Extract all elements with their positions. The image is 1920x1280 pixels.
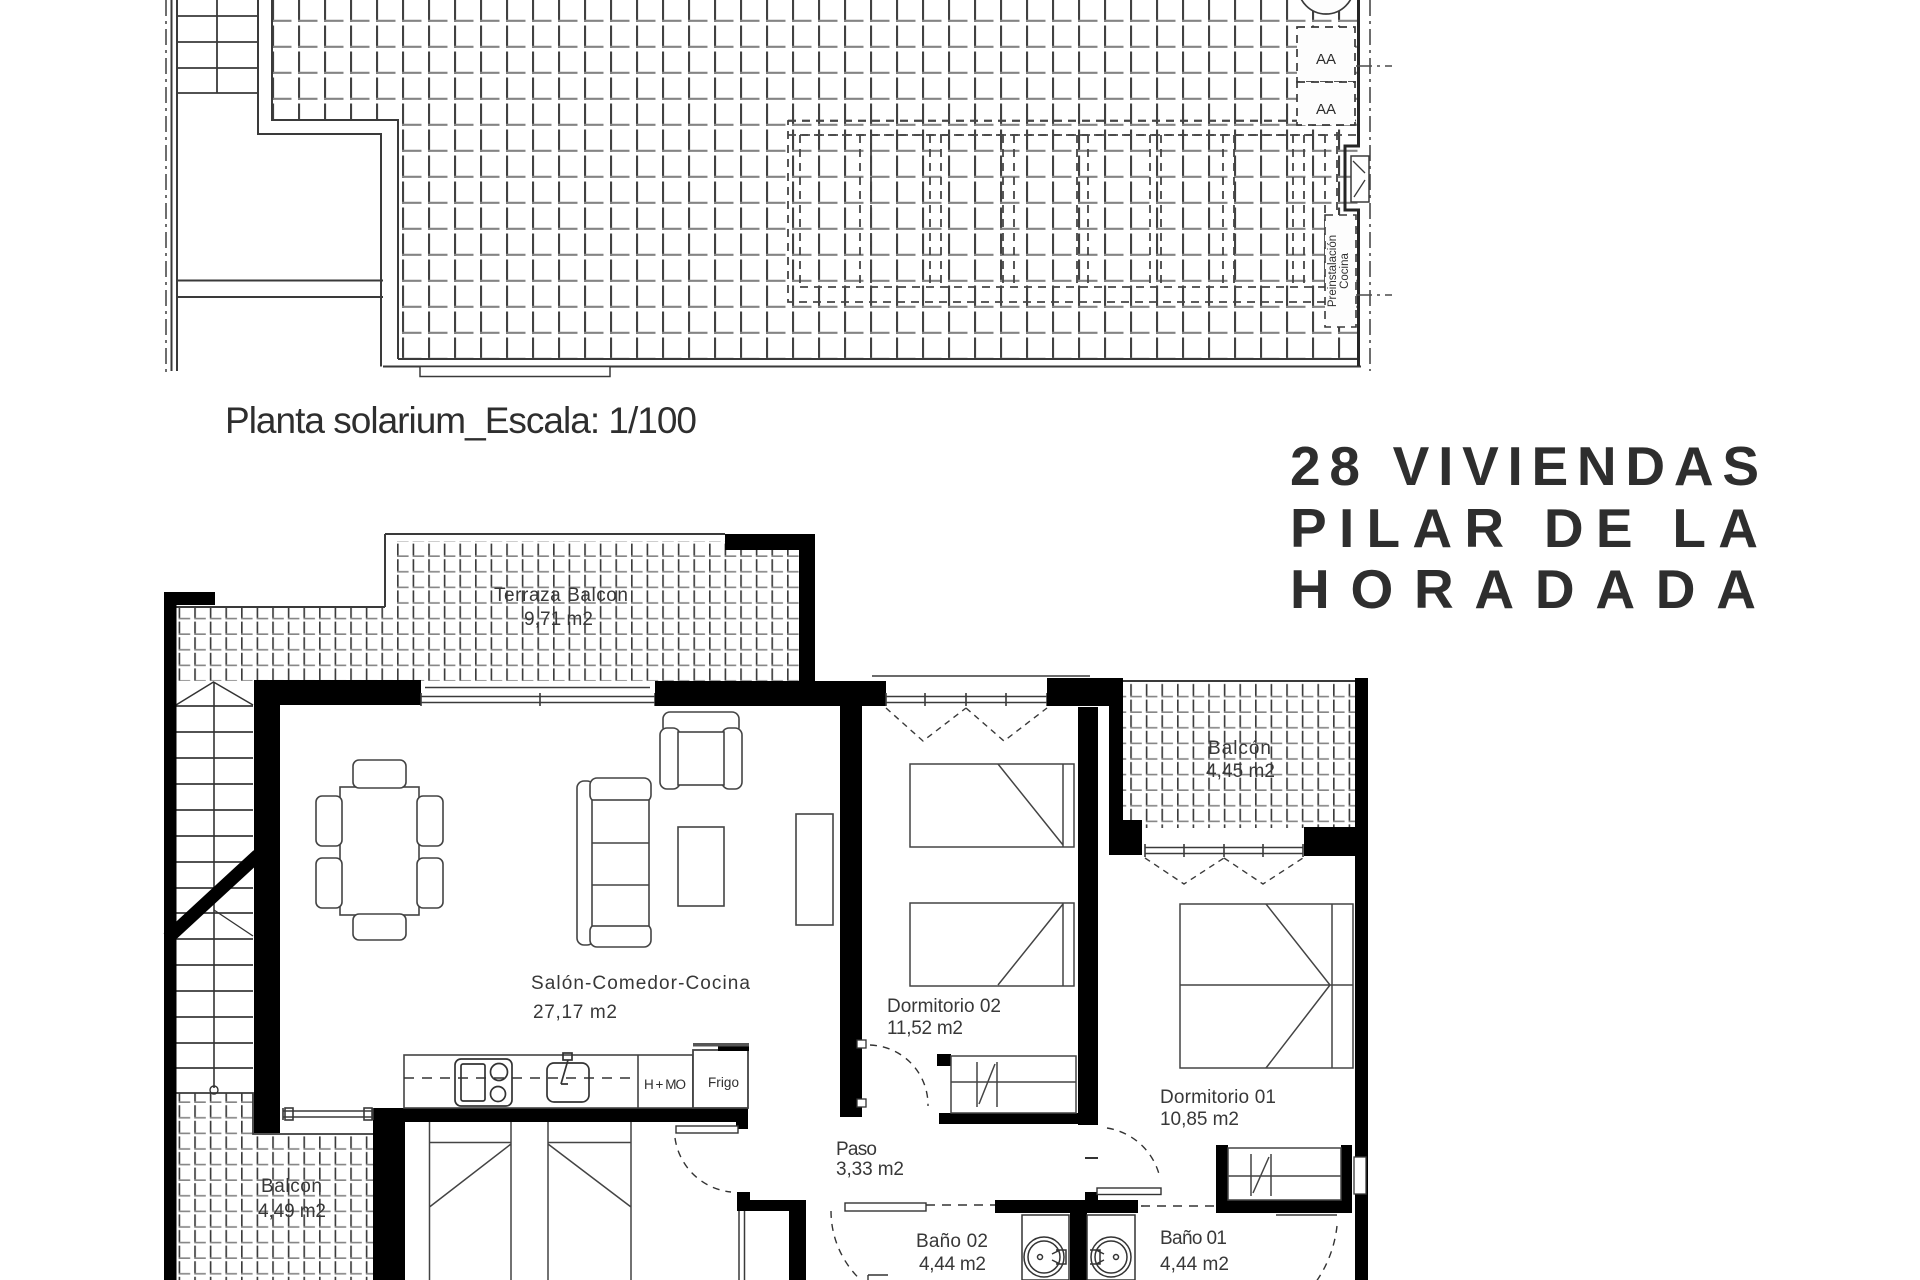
svg-text:Paso: Paso xyxy=(836,1139,877,1160)
svg-text:Preinstalación: Preinstalación xyxy=(1327,235,1339,307)
svg-text:4,49 m2: 4,49 m2 xyxy=(258,1201,326,1222)
svg-text:Salón-Comedor-Cocina: Salón-Comedor-Cocina xyxy=(531,973,750,994)
svg-text:Baño 01: Baño 01 xyxy=(1160,1228,1227,1249)
svg-text:Planta solarium_Escala: 1/100: Planta solarium_Escala: 1/100 xyxy=(225,400,697,441)
svg-text:Balcon: Balcon xyxy=(261,1176,322,1197)
svg-text:Dormitorio 01: Dormitorio 01 xyxy=(1160,1087,1276,1108)
svg-text:3,33 m2: 3,33 m2 xyxy=(836,1159,904,1180)
svg-text:4,44 m2: 4,44 m2 xyxy=(1160,1254,1229,1275)
svg-text:27,17 m2: 27,17 m2 xyxy=(533,1002,617,1023)
svg-text:Terraza Balcon: Terraza Balcon xyxy=(494,585,628,606)
svg-text:Frigo: Frigo xyxy=(708,1075,739,1090)
svg-text:H + MO: H + MO xyxy=(644,1077,686,1092)
svg-text:Baño 02: Baño 02 xyxy=(916,1231,988,1252)
svg-text:9,71 m2: 9,71 m2 xyxy=(524,609,593,630)
svg-text:AA: AA xyxy=(1316,101,1336,118)
svg-text:4,45 m2: 4,45 m2 xyxy=(1206,761,1275,782)
svg-text:AA: AA xyxy=(1316,51,1336,68)
svg-text:Cocina: Cocina xyxy=(1339,253,1351,289)
svg-text:4,44 m2: 4,44 m2 xyxy=(919,1254,986,1275)
svg-text:Balcón: Balcón xyxy=(1208,738,1271,759)
svg-text:11,52 m2: 11,52 m2 xyxy=(887,1018,963,1039)
svg-text:10,85 m2: 10,85 m2 xyxy=(1160,1109,1239,1130)
svg-text:Dormitorio 02: Dormitorio 02 xyxy=(887,996,1001,1017)
